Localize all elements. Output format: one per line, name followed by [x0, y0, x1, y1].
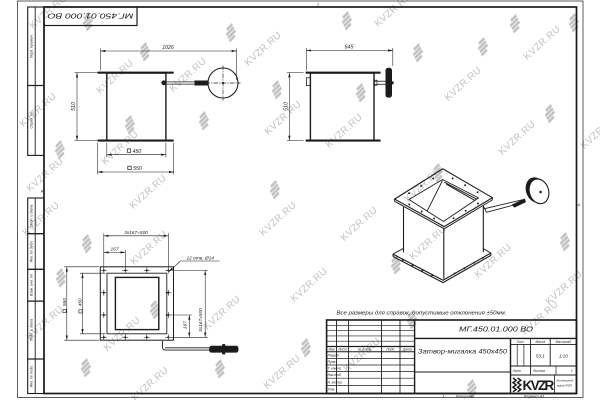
svg-text:Масштаб: Масштаб — [556, 340, 572, 344]
svg-text:Т. контр.: Т. контр. — [328, 367, 342, 371]
svg-text:53,1: 53,1 — [536, 354, 545, 359]
svg-text:А: А — [40, 190, 44, 194]
svg-text:Котельный: Котельный — [557, 379, 574, 383]
svg-text:Инв. № подл.: Инв. № подл. — [29, 365, 33, 387]
svg-text:Пров.: Пров. — [328, 360, 337, 364]
svg-text:510: 510 — [71, 102, 77, 111]
svg-text:Копировал: Копировал — [456, 394, 474, 398]
svg-text:Н. контр.: Н. контр. — [328, 380, 343, 384]
svg-text:Взам. инв. №: Взам. инв. № — [29, 274, 33, 296]
svg-text:167: 167 — [110, 247, 118, 253]
svg-text:А: А — [576, 203, 580, 207]
svg-text:Подп. и дата: Подп. и дата — [29, 319, 33, 342]
svg-text:завод РЭП: завод РЭП — [556, 384, 573, 388]
svg-text:1026: 1026 — [162, 45, 174, 51]
svg-text:Лист: Лист — [512, 369, 522, 373]
svg-text:Затвор-мигалка 450х450: Затвор-мигалка 450х450 — [418, 349, 508, 356]
svg-text:1: 1 — [442, 394, 444, 398]
svg-text:510: 510 — [284, 102, 290, 111]
svg-text:12 отв. Ø14: 12 отв. Ø14 — [187, 256, 215, 262]
svg-text:645: 645 — [345, 45, 354, 51]
svg-text:Лист: Лист — [337, 347, 347, 351]
svg-text:Формат А3: Формат А3 — [524, 394, 545, 398]
svg-text:Подп.: Подп. — [386, 347, 395, 351]
svg-text:Разраб.: Разраб. — [328, 353, 340, 357]
svg-text:1:10: 1:10 — [559, 354, 568, 359]
svg-text:3x167=500: 3x167=500 — [198, 308, 204, 332]
svg-text:3x167=500: 3x167=500 — [124, 230, 148, 236]
svg-text:Лит.: Лит. — [516, 340, 525, 344]
svg-text:550: 550 — [62, 298, 68, 306]
svg-text:МГ.450.01.000 ВО: МГ.450.01.000 ВО — [47, 12, 134, 19]
svg-text:№ докум.: № докум. — [358, 347, 373, 351]
svg-text:МГ.450.01.000 ВО: МГ.450.01.000 ВО — [459, 325, 533, 334]
svg-text:Инв. № дубл.: Инв. № дубл. — [29, 240, 33, 262]
svg-text:450: 450 — [133, 149, 142, 155]
svg-text:550: 550 — [133, 166, 142, 172]
svg-text:Утв.: Утв. — [328, 388, 336, 392]
svg-text:Справ. №: Справ. № — [29, 112, 33, 128]
svg-text:Нач.отд.: Нач.отд. — [328, 373, 342, 377]
svg-text:450: 450 — [78, 298, 84, 306]
svg-text:Масса: Масса — [536, 340, 546, 344]
svg-text:167: 167 — [182, 321, 188, 329]
svg-text:Дата: Дата — [402, 347, 412, 351]
svg-text:KVZR: KVZR — [523, 378, 555, 393]
svg-text:1: 1 — [317, 3, 319, 7]
svg-text:Все размеры для справок, допус: Все размеры для справок, допустимые откл… — [337, 310, 507, 316]
svg-text:Перв. примен.: Перв. примен. — [29, 34, 33, 58]
svg-text:Изм: Изм — [328, 347, 335, 351]
svg-text:Подп. и дата: Подп. и дата — [29, 205, 33, 228]
svg-text:1: 1 — [571, 369, 573, 373]
svg-text:Листов: Листов — [532, 369, 545, 373]
